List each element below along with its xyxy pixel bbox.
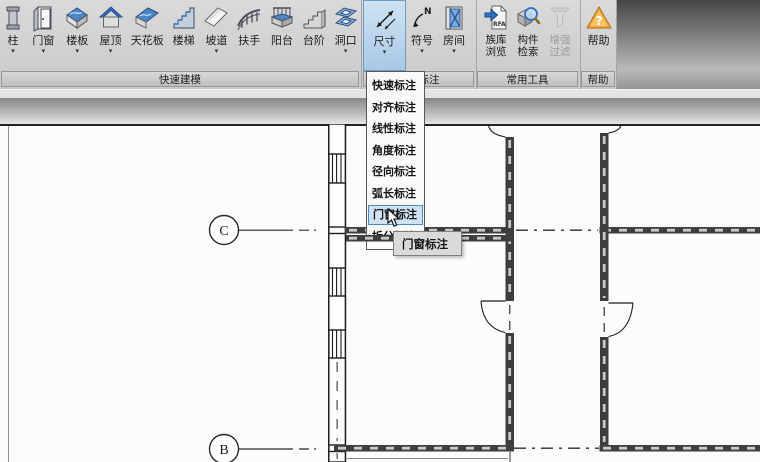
stairs-icon bbox=[171, 2, 197, 34]
dimension-icon bbox=[372, 3, 398, 35]
button-label: 尺寸 bbox=[374, 35, 396, 48]
group-separator bbox=[580, 0, 581, 89]
caret-down-icon[interactable]: ▾ bbox=[42, 47, 46, 55]
door-icon bbox=[30, 2, 56, 34]
ribbon-empty-area bbox=[617, 0, 760, 92]
door-swing-top-b bbox=[609, 125, 622, 133]
ceiling-icon bbox=[134, 2, 160, 34]
column-button[interactable]: 柱 ▾ bbox=[0, 0, 26, 71]
caret-down-icon[interactable]: ▾ bbox=[420, 47, 424, 55]
button-label: 增强过滤 bbox=[550, 34, 571, 58]
caret-down-icon[interactable]: ▾ bbox=[11, 47, 15, 55]
column-icon bbox=[0, 2, 26, 34]
door-b[interactable] bbox=[604, 303, 633, 337]
button-label: 族库浏览 bbox=[486, 34, 507, 58]
group-label-common-tools: 常用工具 bbox=[477, 71, 578, 87]
grid-bubble-c-label: C bbox=[219, 224, 228, 239]
button-label: 屋顶 bbox=[100, 34, 122, 47]
room-icon bbox=[441, 2, 467, 34]
button-label: 扶手 bbox=[238, 34, 260, 47]
menu-item-aligned-dimension[interactable]: 对齐标注 bbox=[367, 97, 424, 119]
menu-item-angle-dimension[interactable]: 角度标注 bbox=[367, 140, 424, 162]
stairs-button[interactable]: 楼梯 bbox=[167, 0, 200, 71]
button-label: 坡道 bbox=[205, 34, 227, 47]
grid-bubble-b-label: B bbox=[219, 443, 228, 458]
steps-button[interactable]: 台阶 bbox=[298, 0, 329, 71]
filter-icon bbox=[547, 2, 573, 34]
railing-icon bbox=[236, 2, 262, 34]
menu-item-radial-dimension[interactable]: 径向标注 bbox=[367, 161, 424, 183]
group-separator bbox=[476, 0, 477, 89]
component-search-button[interactable]: 构件检索 bbox=[513, 0, 543, 71]
dimension-button[interactable]: 尺寸 ▾ bbox=[363, 0, 406, 71]
opening-button[interactable]: 洞口 ▾ bbox=[329, 0, 362, 71]
grid-line-b[interactable]: B bbox=[210, 435, 317, 462]
button-label: 楼梯 bbox=[173, 34, 195, 47]
component-search-icon bbox=[515, 2, 541, 34]
ramp-icon bbox=[203, 2, 229, 34]
rfa-text: RFA bbox=[493, 21, 506, 28]
roof-button[interactable]: 屋顶 ▾ bbox=[94, 0, 128, 71]
caret-down-icon[interactable]: ▾ bbox=[452, 47, 456, 55]
app-window: 柱 ▾ 门窗 ▾ 楼板 ▾ bbox=[0, 0, 760, 462]
slab-icon bbox=[64, 2, 90, 34]
balcony-icon bbox=[269, 2, 295, 34]
tooltip: 门窗标注 bbox=[393, 231, 462, 256]
family-library-button[interactable]: RFA 族库浏览 bbox=[481, 0, 511, 71]
help-icon: ? bbox=[585, 2, 613, 34]
symbol-button[interactable]: N 符号 ▾ bbox=[407, 0, 437, 71]
bottom-horizontal-wall[interactable] bbox=[334, 445, 760, 462]
north-symbol-icon: N bbox=[409, 2, 435, 34]
button-label: 构件检索 bbox=[518, 34, 539, 58]
tooltip-text: 门窗标注 bbox=[402, 236, 448, 252]
button-label: 台阶 bbox=[303, 34, 325, 47]
group-label-help: 帮助 bbox=[581, 71, 615, 87]
room-button[interactable]: 房间 ▾ bbox=[438, 0, 470, 71]
menu-item-linear-dimension[interactable]: 线性标注 bbox=[367, 118, 424, 140]
opening-icon bbox=[333, 2, 359, 34]
floor-slab-button[interactable]: 楼板 ▾ bbox=[61, 0, 94, 71]
caret-down-icon[interactable]: ▾ bbox=[344, 47, 348, 55]
button-label: 阳台 bbox=[271, 34, 293, 47]
interior-wall-b[interactable] bbox=[600, 125, 633, 446]
button-label: 柱 bbox=[8, 34, 19, 47]
steps-icon bbox=[301, 2, 327, 34]
button-label: 房间 bbox=[443, 34, 465, 47]
grid-line-c[interactable]: C bbox=[210, 216, 317, 245]
group-separator bbox=[361, 0, 362, 89]
button-label: 门窗 bbox=[32, 34, 54, 47]
family-library-icon: RFA bbox=[483, 2, 509, 34]
balcony-button[interactable]: 阳台 bbox=[266, 0, 299, 71]
enhanced-filter-button: 增强过滤 bbox=[545, 0, 575, 71]
button-label: 符号 bbox=[411, 34, 433, 47]
button-label: 洞口 bbox=[335, 34, 357, 47]
menu-item-arc-length-dimension[interactable]: 弧长标注 bbox=[367, 183, 424, 205]
button-label: 帮助 bbox=[588, 34, 610, 47]
door-window-button[interactable]: 门窗 ▾ bbox=[26, 0, 61, 71]
exterior-wall-with-windows[interactable] bbox=[329, 124, 346, 462]
caret-down-icon[interactable]: ▾ bbox=[215, 47, 219, 55]
help-button[interactable]: ? 帮助 bbox=[582, 0, 615, 71]
door-a[interactable] bbox=[481, 301, 510, 333]
railing-button[interactable]: 扶手 bbox=[233, 0, 266, 71]
group-label-quick-model: 快速建模 bbox=[1, 71, 359, 87]
caret-down-icon[interactable]: ▾ bbox=[75, 47, 79, 55]
question-mark: ? bbox=[595, 14, 602, 28]
door-swing-top-a bbox=[489, 125, 506, 137]
caret-down-icon[interactable]: ▾ bbox=[383, 48, 387, 56]
button-label: 楼板 bbox=[66, 34, 88, 47]
menu-item-quick-dimension[interactable]: 快速标注 bbox=[367, 75, 424, 97]
roof-icon bbox=[98, 2, 124, 34]
north-letter: N bbox=[424, 7, 432, 17]
button-label: 天花板 bbox=[131, 34, 164, 47]
ceiling-button[interactable]: 天花板 bbox=[127, 0, 167, 71]
ramp-button[interactable]: 坡道 ▾ bbox=[200, 0, 233, 71]
mouse-cursor-icon bbox=[385, 208, 401, 232]
caret-down-icon[interactable]: ▾ bbox=[109, 47, 113, 55]
interior-wall-a[interactable] bbox=[481, 125, 514, 446]
